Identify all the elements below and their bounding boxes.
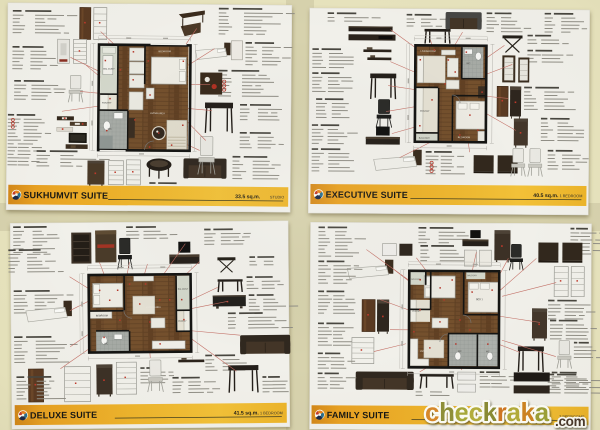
- svg-text:1 BEDROOM: 1 BEDROOM: [560, 194, 583, 198]
- svg-text:33.5 sq.m.: 33.5 sq.m.: [235, 194, 261, 200]
- svg-text:BALCONY: BALCONY: [103, 68, 115, 71]
- svg-text:1 BEDROOM: 1 BEDROOM: [260, 411, 283, 415]
- svg-text:EXECUTIVE SUITE: EXECUTIVE SUITE: [326, 190, 408, 201]
- svg-text:BALCONY: BALCONY: [178, 288, 189, 291]
- svg-text:LIVINGROOM: LIVINGROOM: [420, 50, 435, 53]
- svg-text:LIVING: LIVING: [420, 351, 428, 353]
- svg-text:BALCONY: BALCONY: [419, 137, 430, 140]
- svg-text:BALCONY: BALCONY: [467, 274, 477, 277]
- svg-text:FAMILY SUITE: FAMILY SUITE: [327, 410, 390, 420]
- svg-text:PANTRY: PANTRY: [178, 320, 187, 323]
- svg-text:WC: WC: [458, 351, 462, 353]
- svg-text:BEDROOM: BEDROOM: [96, 315, 108, 317]
- svg-text:BED 2: BED 2: [432, 291, 439, 293]
- svg-text:WC: WC: [104, 342, 108, 345]
- svg-text:STUDIO: STUDIO: [270, 195, 284, 199]
- svg-text:WC: WC: [486, 351, 490, 353]
- svg-text:DELUXE SUITE: DELUXE SUITE: [30, 410, 97, 421]
- svg-text:LIVING AREA: LIVING AREA: [150, 112, 165, 115]
- svg-text:.com: .com: [555, 414, 586, 429]
- svg-text:WC: WC: [108, 128, 112, 131]
- svg-text:40.5 sq.m.: 40.5 sq.m.: [533, 193, 559, 199]
- svg-text:LIVING AREA: LIVING AREA: [146, 306, 161, 309]
- svg-text:checkraka: checkraka: [425, 397, 550, 427]
- svg-text:PANTRY: PANTRY: [420, 110, 430, 113]
- svg-text:BEDROOM: BEDROOM: [158, 50, 170, 53]
- svg-text:41.5 sq.m.: 41.5 sq.m.: [234, 410, 260, 416]
- svg-text:BED 1: BED 1: [476, 299, 483, 301]
- svg-text:WC: WC: [466, 62, 470, 65]
- svg-text:BEDROOM: BEDROOM: [458, 136, 470, 139]
- svg-text:PANTRY: PANTRY: [102, 102, 112, 105]
- svg-text:SUKHUMVIT SUITE: SUKHUMVIT SUITE: [23, 190, 108, 201]
